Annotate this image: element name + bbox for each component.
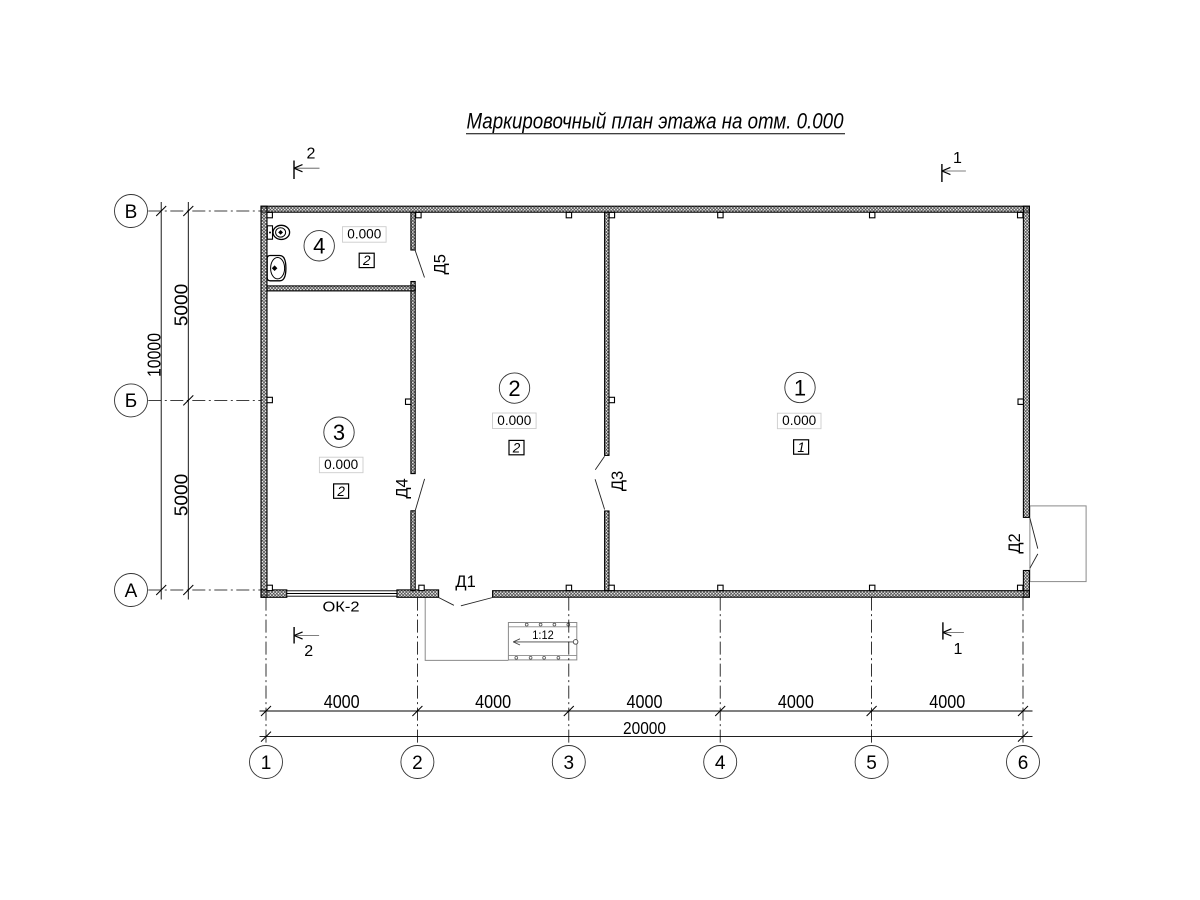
svg-text:Д1: Д1	[455, 573, 475, 591]
svg-text:Д5: Д5	[432, 254, 450, 274]
svg-text:2: 2	[362, 253, 371, 268]
svg-text:4000: 4000	[324, 692, 360, 712]
svg-text:3: 3	[564, 753, 575, 774]
svg-text:6: 6	[1018, 753, 1029, 774]
svg-text:Д3: Д3	[609, 471, 627, 491]
svg-text:0.000: 0.000	[347, 227, 381, 242]
svg-text:0.000: 0.000	[324, 457, 358, 472]
svg-text:4000: 4000	[475, 692, 511, 712]
svg-text:0.000: 0.000	[782, 413, 816, 428]
svg-text:Д4: Д4	[394, 478, 412, 498]
svg-text:4: 4	[715, 753, 726, 774]
svg-text:1: 1	[794, 375, 806, 400]
svg-text:4000: 4000	[929, 692, 965, 712]
svg-text:4: 4	[313, 234, 325, 259]
svg-text:0.000: 0.000	[497, 413, 531, 428]
svg-text:5000: 5000	[170, 284, 191, 327]
svg-text:1:12: 1:12	[532, 630, 554, 642]
svg-text:4000: 4000	[778, 692, 814, 712]
svg-text:1: 1	[261, 753, 272, 774]
svg-text:Д2: Д2	[1006, 533, 1024, 553]
svg-text:2: 2	[412, 753, 423, 774]
svg-text:5000: 5000	[170, 474, 191, 517]
svg-text:10000: 10000	[143, 333, 164, 377]
svg-text:3: 3	[333, 420, 345, 445]
svg-text:2: 2	[307, 146, 316, 163]
svg-text:Маркировочный план этажа на от: Маркировочный план этажа на отм. 0.000	[467, 109, 845, 134]
svg-text:Б: Б	[125, 391, 137, 412]
svg-text:5: 5	[866, 753, 877, 774]
svg-text:1: 1	[797, 440, 805, 455]
svg-text:ОК-2: ОК-2	[323, 600, 360, 616]
svg-text:1: 1	[954, 641, 963, 658]
svg-text:20000: 20000	[623, 718, 666, 738]
svg-text:А: А	[125, 581, 138, 602]
svg-text:2: 2	[508, 376, 520, 401]
svg-text:В: В	[125, 202, 138, 223]
svg-text:2: 2	[512, 440, 521, 455]
svg-text:1: 1	[953, 150, 962, 167]
svg-text:2: 2	[304, 643, 313, 660]
svg-text:4000: 4000	[627, 692, 663, 712]
svg-text:2: 2	[336, 484, 345, 499]
